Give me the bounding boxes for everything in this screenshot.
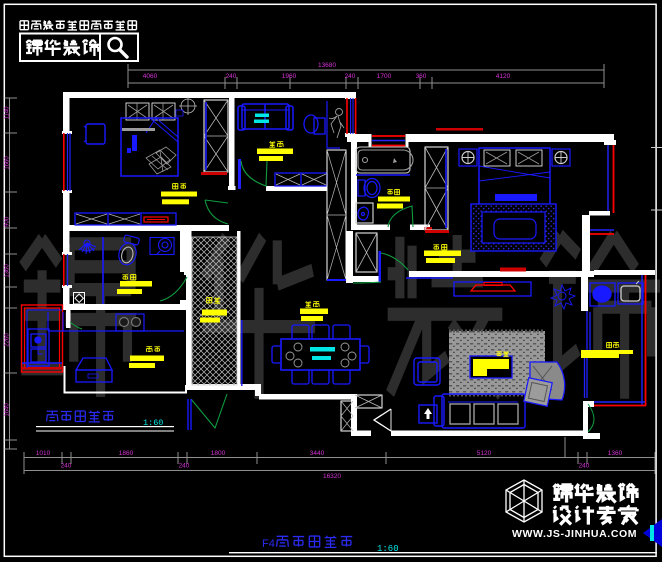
svg-text:1860: 1860 — [119, 450, 134, 457]
svg-text:240: 240 — [226, 73, 237, 80]
svg-text:240: 240 — [579, 463, 590, 470]
svg-text:2260: 2260 — [5, 333, 11, 347]
svg-text:240: 240 — [61, 463, 72, 470]
svg-text:WWW.JS-JINHUA.COM: WWW.JS-JINHUA.COM — [512, 528, 637, 540]
svg-text:3440: 3440 — [310, 450, 325, 457]
svg-text:1960: 1960 — [282, 73, 297, 80]
svg-text:1010: 1010 — [36, 450, 51, 457]
svg-text:240: 240 — [179, 463, 190, 470]
svg-text:4120: 4120 — [496, 73, 511, 80]
svg-text:1360: 1360 — [5, 264, 11, 278]
svg-text:360: 360 — [416, 73, 427, 80]
svg-text:1640: 1640 — [5, 403, 11, 417]
svg-text:1140: 1140 — [5, 106, 11, 120]
svg-text:13680: 13680 — [318, 62, 336, 69]
svg-text:1700: 1700 — [377, 73, 392, 80]
svg-text:1800: 1800 — [211, 450, 226, 457]
svg-text:240: 240 — [345, 73, 356, 80]
svg-text:1660: 1660 — [5, 156, 11, 170]
svg-text:4060: 4060 — [143, 73, 158, 80]
svg-text:F4: F4 — [262, 538, 275, 550]
svg-text:1:60: 1:60 — [377, 544, 399, 554]
svg-text:16320: 16320 — [323, 473, 341, 480]
svg-text:1360: 1360 — [608, 450, 623, 457]
svg-text:5120: 5120 — [477, 450, 492, 457]
svg-text:900: 900 — [5, 216, 11, 227]
